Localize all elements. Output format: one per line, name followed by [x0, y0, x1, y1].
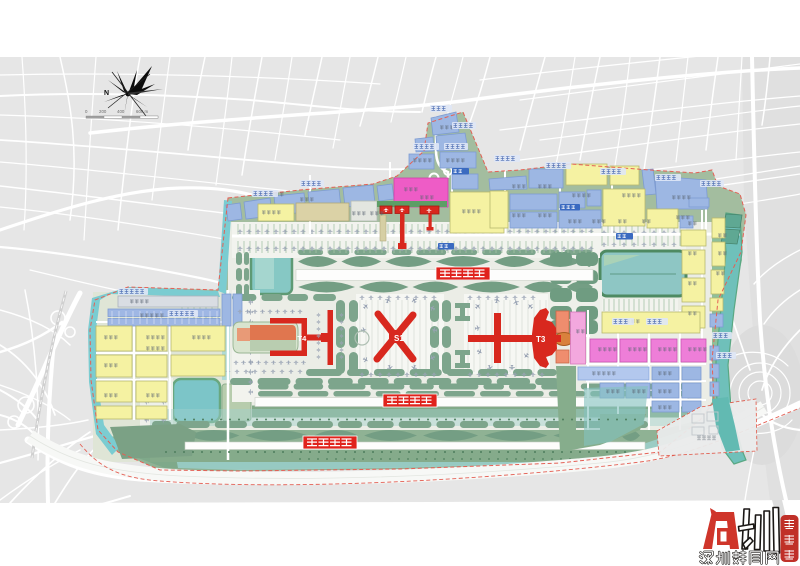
svg-text:T3: T3: [536, 335, 546, 344]
svg-text:S1: S1: [394, 334, 404, 343]
svg-text:N: N: [104, 90, 109, 97]
svg-text:600 m: 600 m: [136, 109, 149, 114]
svg-text:400: 400: [117, 109, 125, 114]
svg-text:T4: T4: [298, 334, 308, 343]
svg-text:200: 200: [99, 109, 107, 114]
